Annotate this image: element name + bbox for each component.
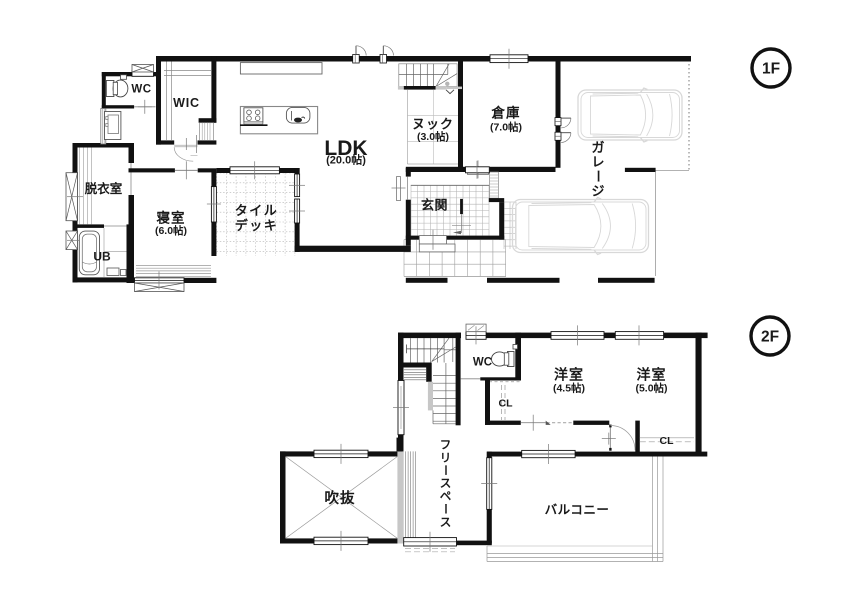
svg-text:(5.0帖): (5.0帖) <box>635 382 667 395</box>
svg-text:(3.0帖): (3.0帖) <box>417 130 449 143</box>
svg-text:ガ: ガ <box>591 140 604 155</box>
svg-text:ー: ー <box>438 464 450 476</box>
svg-text:CL: CL <box>499 398 514 410</box>
svg-text:洋室: 洋室 <box>554 367 584 383</box>
svg-text:(7.0帖): (7.0帖) <box>490 121 522 134</box>
svg-text:脱衣室: 脱衣室 <box>85 181 123 196</box>
svg-text:WIC: WIC <box>173 96 200 110</box>
svg-text:デッキ: デッキ <box>235 218 279 233</box>
svg-text:CL: CL <box>660 435 675 447</box>
svg-text:フ: フ <box>440 440 452 452</box>
svg-text:バルコニー: バルコニー <box>545 503 610 517</box>
svg-text:ジ: ジ <box>591 183 604 198</box>
svg-text:寝室: 寝室 <box>157 210 186 226</box>
svg-text:(4.5帖): (4.5帖) <box>553 382 585 395</box>
svg-text:玄関: 玄関 <box>421 198 448 213</box>
svg-text:吹抜: 吹抜 <box>325 489 356 507</box>
svg-text:1F: 1F <box>762 61 780 78</box>
svg-text:ス: ス <box>440 478 452 490</box>
svg-text:倉庫: 倉庫 <box>491 105 521 121</box>
svg-text:ー: ー <box>590 170 605 183</box>
svg-text:レ: レ <box>591 154 604 169</box>
svg-text:ス: ス <box>440 517 452 529</box>
svg-text:(20.0帖): (20.0帖) <box>326 153 366 167</box>
svg-text:2F: 2F <box>761 329 779 346</box>
svg-text:洋室: 洋室 <box>637 367 667 383</box>
svg-text:(6.0帖): (6.0帖) <box>155 224 187 237</box>
svg-text:UB: UB <box>93 250 111 264</box>
svg-text:ペ: ペ <box>440 491 452 503</box>
svg-text:WC: WC <box>473 356 492 368</box>
svg-text:タイル: タイル <box>235 203 279 218</box>
svg-text:WC: WC <box>131 84 151 96</box>
svg-text:ヌック: ヌック <box>412 117 454 132</box>
svg-text:リ: リ <box>440 451 452 464</box>
svg-text:ー: ー <box>438 503 450 515</box>
